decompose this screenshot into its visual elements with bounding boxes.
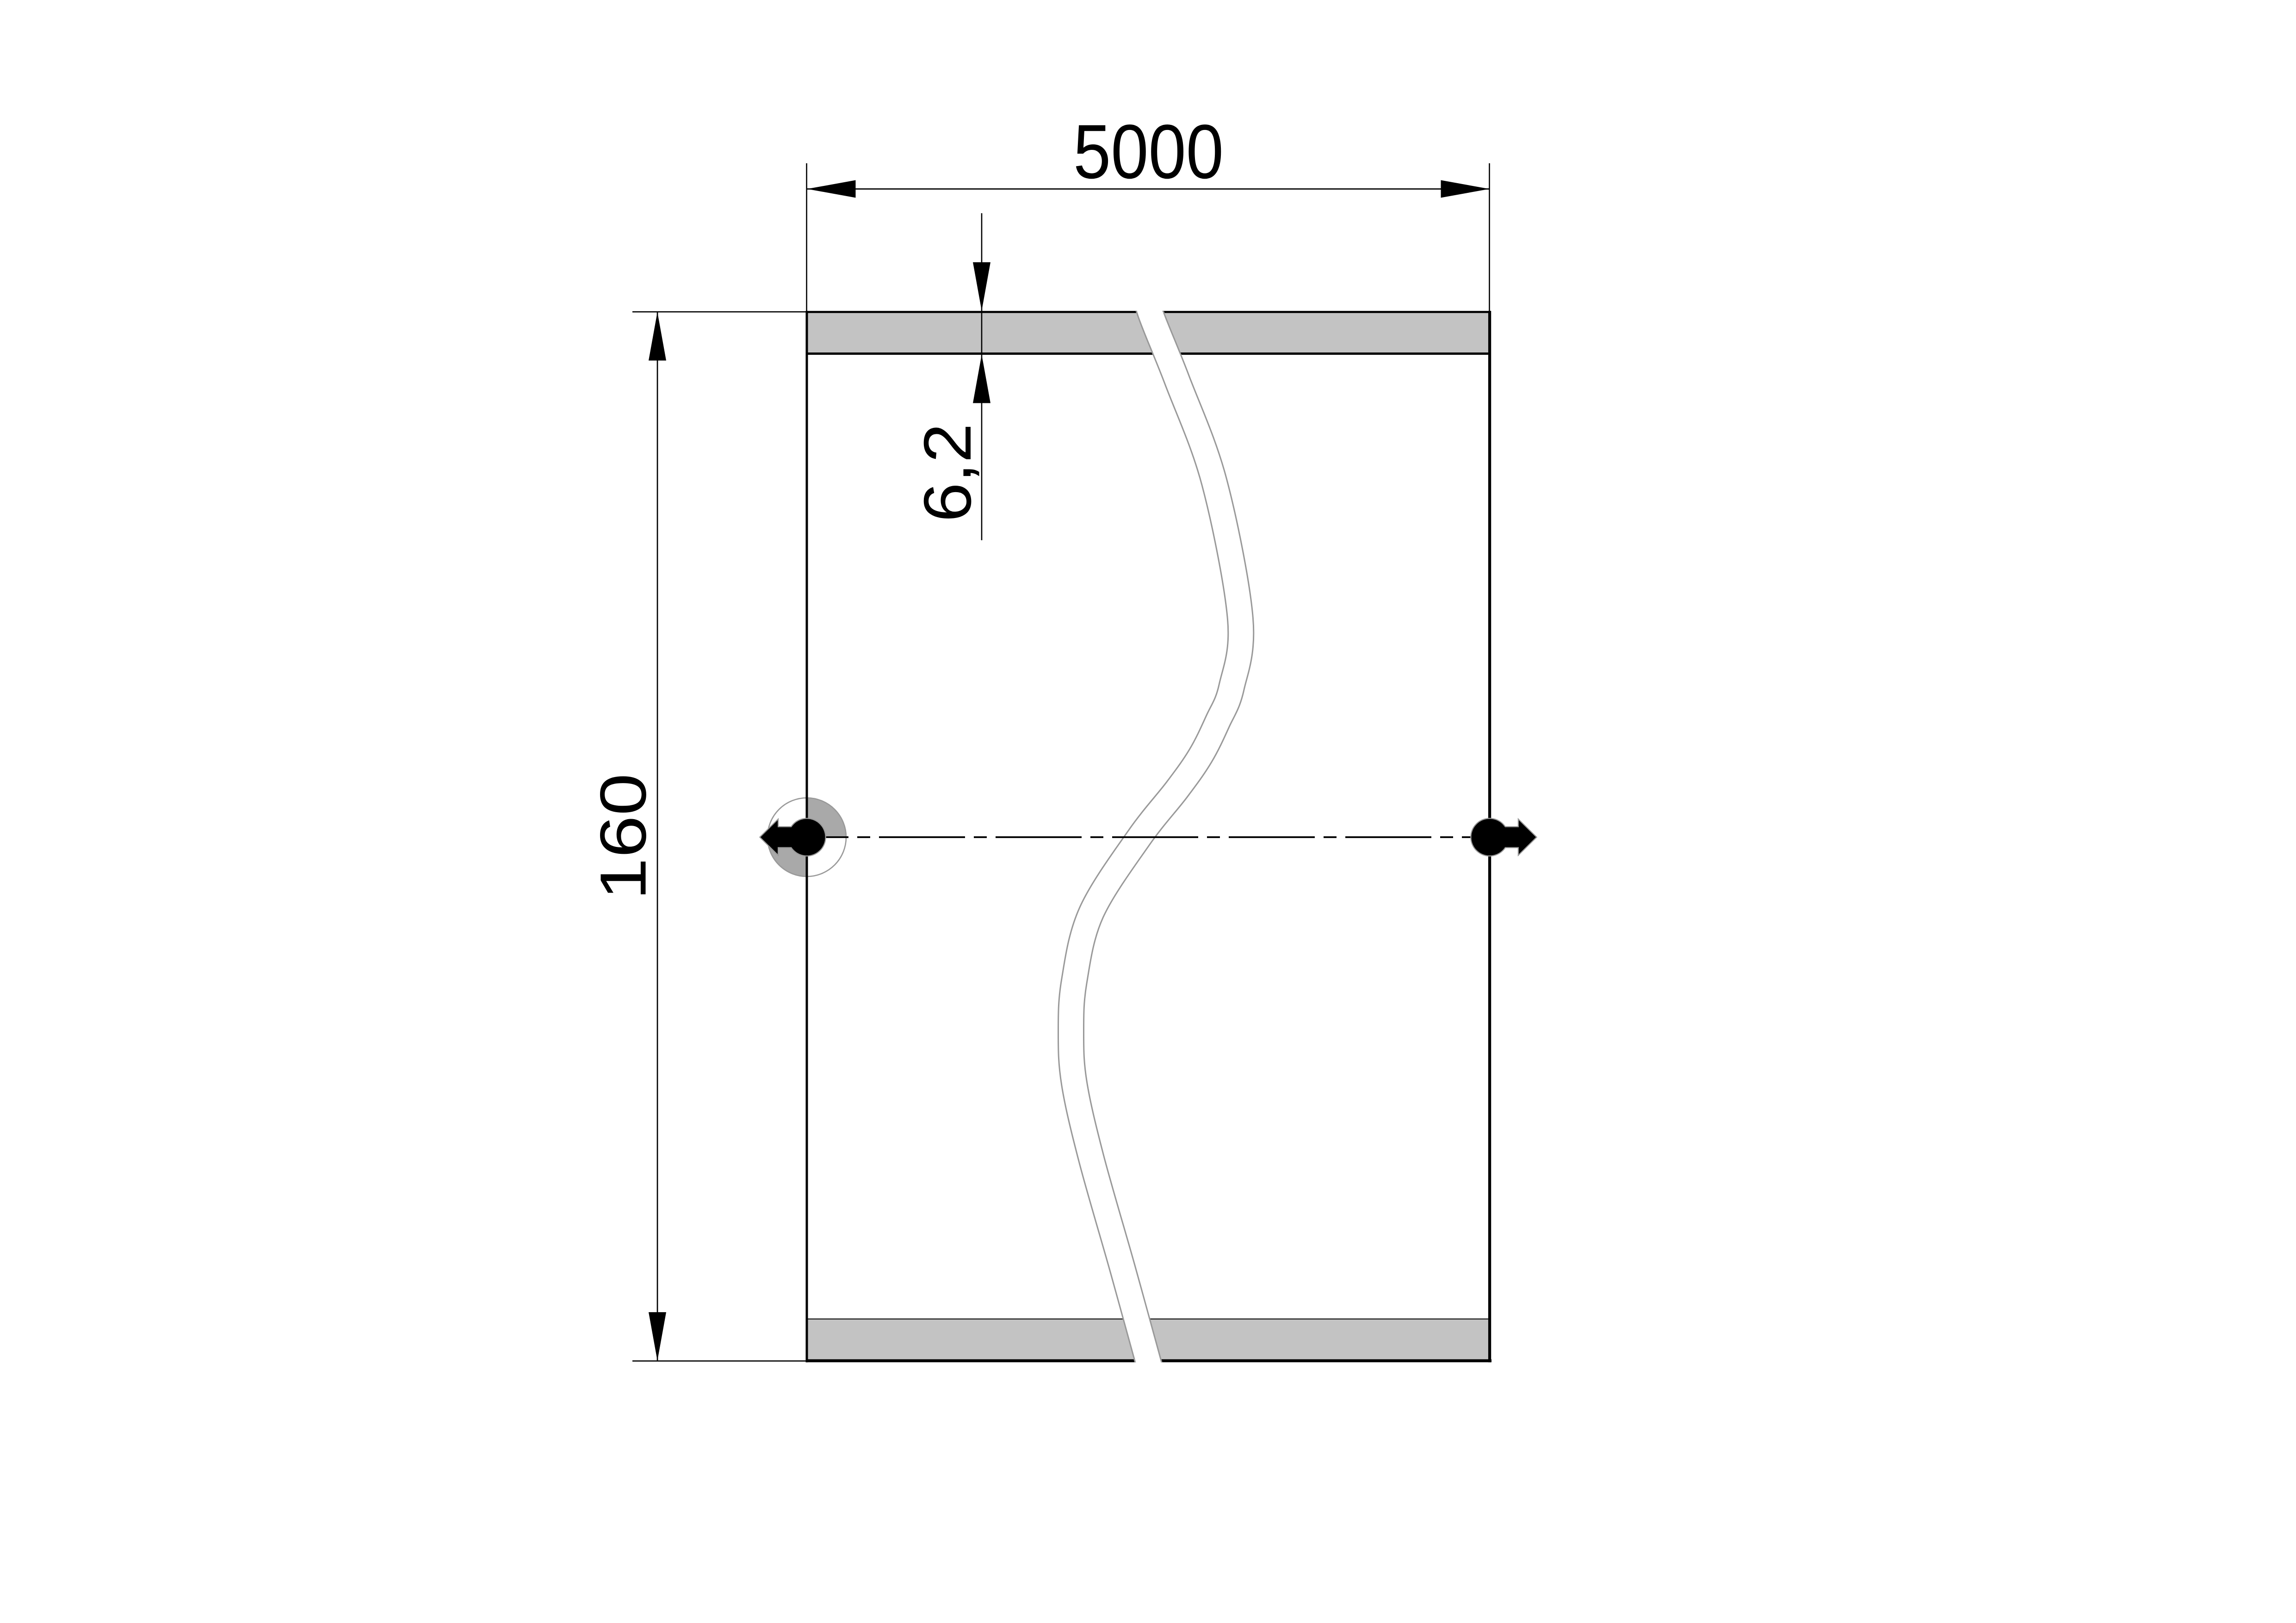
svg-text:6,2: 6,2 bbox=[910, 423, 985, 522]
svg-text:160: 160 bbox=[587, 773, 660, 900]
svg-text:5000: 5000 bbox=[1073, 109, 1224, 195]
